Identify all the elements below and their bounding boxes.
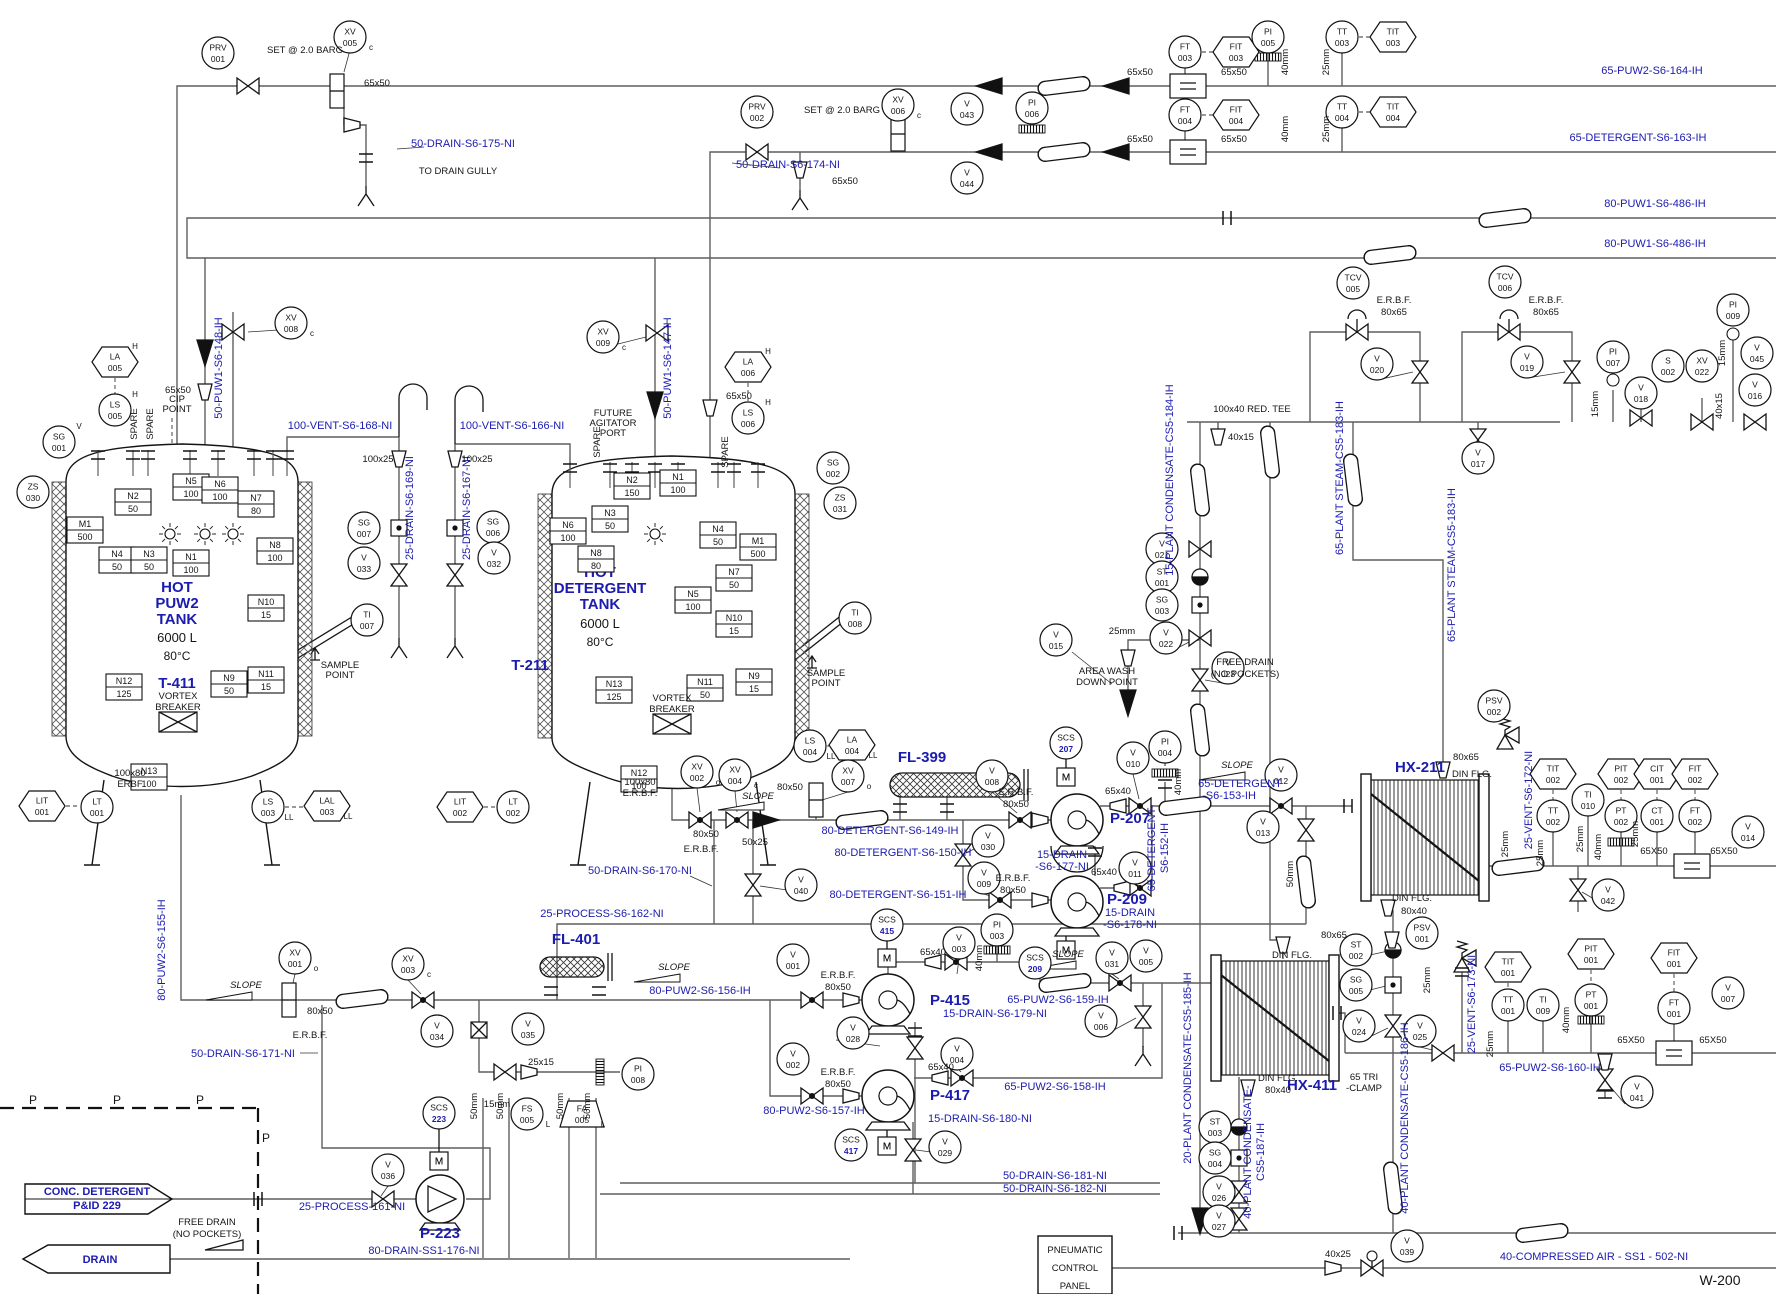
instrument-number: 008 <box>985 777 999 787</box>
nozzle-N4: N450 <box>700 522 736 548</box>
annotation: DIN FLG. <box>1258 1073 1298 1084</box>
reducer-symbol <box>1032 813 1048 827</box>
instrument-TI-008: TI008 <box>839 602 871 634</box>
instrument-function: LAL <box>319 796 334 806</box>
shape <box>1515 1223 1568 1243</box>
instrument-SG-003: SG003 <box>1146 589 1178 621</box>
shape <box>358 186 374 206</box>
instrument-LT-002: LT002 <box>497 791 529 823</box>
nozzle-id: N7 <box>728 567 740 577</box>
shape <box>843 1089 859 1103</box>
instrument-number: 001 <box>1501 1006 1515 1016</box>
instrument-function: ST <box>1351 940 1362 950</box>
flexible-hose-symbol <box>1260 425 1280 478</box>
valve-symbol <box>1135 1006 1151 1028</box>
line-label: 25-VENT-S6-172-NI <box>1523 751 1535 849</box>
instrument-number: 026 <box>1212 1193 1226 1203</box>
flange-pair-symbol <box>592 987 606 995</box>
hose-inner <box>1363 245 1416 265</box>
instrument-function: SCS <box>1057 733 1075 743</box>
annotation: 65x50 <box>1127 134 1153 145</box>
flexible-hose-symbol <box>1190 463 1210 516</box>
instrument-function: SG <box>827 458 839 468</box>
tank-name: PUW2 <box>155 595 198 612</box>
annotation: FREE DRAIN <box>1216 657 1274 668</box>
instrument-number: 018 <box>1634 394 1648 404</box>
annotation: 65X50 <box>1699 1035 1726 1046</box>
instrument-PI-006: PI006 <box>1016 92 1048 124</box>
open-drain-symbol <box>447 638 463 658</box>
instrument-TT-001: TT001 <box>1492 989 1524 1021</box>
annotation: 100x40 RED. TEE <box>1213 404 1290 415</box>
valve-symbol <box>391 564 407 586</box>
instrument-number: 415 <box>880 926 894 936</box>
motor-label: M <box>883 1142 891 1153</box>
nozzle-size: 150 <box>624 488 639 498</box>
instrument-function: PRV <box>748 102 766 112</box>
nozzle-id: N12 <box>116 676 133 686</box>
instrument-number: 209 <box>1028 964 1042 974</box>
instrument-number: 004 <box>1178 116 1192 126</box>
instrument-function: TI <box>363 610 371 620</box>
nozzle-id: N2 <box>127 491 139 501</box>
hose-inner <box>1038 973 1091 993</box>
instrument-PI-009: PI009 <box>1717 294 1749 326</box>
instrument-function: LT <box>508 797 517 807</box>
annotation: E.R.B.F. <box>293 1030 328 1041</box>
instrument-number: 006 <box>741 419 755 429</box>
tank-temperature: 80°C <box>587 635 614 649</box>
flange-pair-symbol <box>544 987 558 995</box>
pipe <box>1310 332 1420 422</box>
nozzle-id: N6 <box>214 479 226 489</box>
instrument-function: V <box>964 99 970 109</box>
shape <box>344 118 360 132</box>
dot <box>1117 980 1123 986</box>
motor-label: M <box>883 954 891 965</box>
line-label: 80-DRAIN-SS1-176-NI <box>368 1245 479 1257</box>
instrument-number: 013 <box>1256 828 1270 838</box>
instrument-function: V <box>1417 1021 1423 1031</box>
diaphragm-valve-symbol <box>412 992 434 1008</box>
instrument-suffix: c <box>369 43 373 52</box>
valve-symbol <box>745 874 761 896</box>
instrument-number: 003 <box>952 944 966 954</box>
nozzle-size: 50 <box>128 504 138 514</box>
instrument-suffix: H <box>132 390 138 399</box>
nozzle-size: 100 <box>560 533 575 543</box>
instrument-function: V <box>1745 822 1751 832</box>
dot <box>1236 1155 1241 1160</box>
nozzle-size: 100 <box>183 489 198 499</box>
shape <box>843 993 859 1007</box>
line-label: 50-DRAIN-S6-170-NI <box>588 865 692 877</box>
annotation: 100x25 <box>362 454 393 465</box>
annotation: POINT <box>162 404 191 415</box>
instrument-number: 039 <box>1400 1247 1414 1257</box>
leader-line <box>690 876 712 886</box>
instrument-V-007: V007 <box>1712 977 1744 1009</box>
instrument-number: 207 <box>1059 744 1073 754</box>
instrument-number: 001 <box>786 961 800 971</box>
annotation: 50mm <box>495 1093 506 1119</box>
nozzle-id: N3 <box>143 549 155 559</box>
instrument-function: V <box>1216 1182 1222 1192</box>
instrument-number: 031 <box>1105 959 1119 969</box>
instrument-TIT-002: TIT002 <box>1530 759 1576 789</box>
nozzle-N8: N880 <box>578 546 614 572</box>
instrument-function: FIT <box>1668 948 1681 958</box>
detail-path <box>205 1240 243 1250</box>
nozzle-id: N1 <box>185 552 197 562</box>
shape <box>866 1026 910 1034</box>
line-label: 100-VENT-S6-168-NI <box>288 420 393 432</box>
instrument-function: XV <box>285 313 297 323</box>
shape <box>206 992 252 1000</box>
instrument-XV-009: XV009c <box>587 321 626 353</box>
shape <box>1497 727 1519 749</box>
spray-ball-symbol <box>222 523 244 545</box>
line-label: 25-PROCESS-S6-162-NI <box>540 908 664 920</box>
instrument-number: 002 <box>1546 817 1560 827</box>
shape <box>866 1122 910 1130</box>
instrument-function: XV <box>729 765 741 775</box>
diaphragm-valve-symbol <box>1270 798 1292 814</box>
instrument-ZS-030: ZS030 <box>17 476 49 508</box>
offpage-label: DRAIN <box>83 1254 118 1266</box>
open-drain-symbol <box>358 186 374 206</box>
flexible-hose-symbol <box>335 989 388 1009</box>
annotation: 40x15 <box>1714 393 1725 419</box>
spray-ball <box>650 529 660 539</box>
nozzle-id: N11 <box>697 677 713 687</box>
nozzle-id: N7 <box>250 493 262 503</box>
instrument-number: 004 <box>845 746 859 756</box>
annotation: SLOPE <box>230 980 262 991</box>
annotation: 40mm <box>1561 1007 1572 1033</box>
shape <box>703 400 717 416</box>
instrument-SG-005: SG005 <box>1340 969 1372 1001</box>
annotation: 25mm <box>1500 831 1511 857</box>
instrument-number: 003 <box>401 965 415 975</box>
tank-temperature: 80°C <box>164 649 191 663</box>
instrument-number: 001 <box>52 443 66 453</box>
instrument-number: 002 <box>1614 775 1628 785</box>
annotation: 25mm <box>1485 1031 1496 1057</box>
instrument-function: TT <box>1548 806 1558 816</box>
shape <box>391 564 407 586</box>
diaphragm-valve-symbol <box>726 812 748 828</box>
instrument-number: 003 <box>1208 1128 1222 1138</box>
instrument-function: V <box>385 1160 391 1170</box>
flexible-hose-symbol <box>1296 855 1316 908</box>
line-label: 25-DRAIN-S6-169-NI <box>404 456 416 560</box>
instrument-function: TI <box>851 608 859 618</box>
annotation: DIN FLG. <box>1392 893 1432 904</box>
instrument-number: 223 <box>432 1114 446 1124</box>
shape <box>1103 78 1129 94</box>
line-label: 65-PUW2-S6-164-IH <box>1601 65 1703 77</box>
instrument-PRV-002: PRV002 <box>741 96 773 128</box>
shape <box>335 989 388 1009</box>
flow-arrow-down <box>1120 690 1136 716</box>
dot <box>396 525 401 530</box>
instrument-number: 043 <box>960 110 974 120</box>
inline-spool-symbol <box>809 783 823 817</box>
instrument-suffix: LL <box>285 813 294 822</box>
instrument-V-039: V039 <box>1391 1230 1423 1262</box>
valve-symbol <box>907 1037 923 1059</box>
instrument-function: V <box>1278 765 1284 775</box>
dot <box>809 1093 815 1099</box>
instrument-function: TT <box>1503 995 1513 1005</box>
shape <box>544 987 558 995</box>
instrument-V-010: V010 <box>1117 742 1149 774</box>
heater-comb <box>1255 53 1281 61</box>
annotation: 40mm <box>1280 49 1291 75</box>
nozzle-id: N10 <box>726 613 743 623</box>
dot <box>1137 803 1143 809</box>
instrument-number: 035 <box>521 1030 535 1040</box>
instrument-number: 007 <box>1606 358 1620 368</box>
shape <box>1211 429 1225 445</box>
panel-label: PANEL <box>1060 1281 1090 1292</box>
annotation: 65x40 <box>1105 786 1131 797</box>
heating-element-symbol <box>1578 1016 1604 1024</box>
annotation: 65X50 <box>1710 846 1737 857</box>
shape <box>197 340 213 366</box>
line-label: 20-PLANT CONDENSATE-CS5-185-IH <box>1182 972 1194 1164</box>
instrument-function: S <box>1665 356 1671 366</box>
instrument-number: 417 <box>844 1146 858 1156</box>
instrument-XV-001: XV001o <box>279 942 319 974</box>
annotation: 65x40 <box>1091 867 1117 878</box>
shape <box>1478 208 1531 228</box>
instrument-function: FT <box>1690 806 1700 816</box>
instrument-number: 027 <box>1212 1222 1226 1232</box>
shape <box>907 1037 923 1059</box>
instrument-XV-022: XV022 <box>1686 350 1718 382</box>
instrument-suffix: o <box>867 782 872 791</box>
instrument-PIT-001: PIT001 <box>1568 939 1614 969</box>
reducer-symbol <box>843 1089 859 1103</box>
hose-inner <box>1037 76 1090 96</box>
line-label: -S6-153-IH <box>1202 790 1256 802</box>
annotation: E.R.B.F. <box>1377 295 1412 306</box>
line-label: 80-DETERGENT-S6-150-IH <box>835 847 972 859</box>
nozzle-M1: M1500 <box>740 534 776 560</box>
instrument-suffix: L <box>546 1120 551 1129</box>
nozzle-N7: N750 <box>716 565 752 591</box>
instrument-suffix: H <box>132 342 138 351</box>
instrument-function: V <box>1132 858 1138 868</box>
slope-wedge-symbol <box>206 992 252 1000</box>
instrument-number: 032 <box>487 559 501 569</box>
heating-element-symbol <box>984 946 1010 954</box>
flexible-hose-symbol <box>1038 973 1091 993</box>
hose-inner <box>1037 142 1090 162</box>
instrument-function: V <box>525 1019 531 1029</box>
annotation: SPARE <box>720 436 731 468</box>
instrument-number: 002 <box>826 469 840 479</box>
nozzle-id: N5 <box>687 589 699 599</box>
pump-casing <box>862 974 914 1026</box>
line-label: 80-PUW2-S6-155-IH <box>156 899 168 1001</box>
nozzle-N8: N8100 <box>257 538 293 564</box>
instrument-PI-005: PI005 <box>1252 21 1284 53</box>
instrument-function: TIT <box>1387 27 1400 37</box>
instrument-V-029: V029 <box>929 1131 961 1163</box>
instrument-V-034: V034 <box>421 1015 453 1047</box>
annotation: 80x50 <box>777 782 803 793</box>
instrument-V-035: V035 <box>512 1013 544 1045</box>
instrument-function: PI <box>993 920 1001 930</box>
instrument-suffix: o <box>314 964 319 973</box>
instrument-number: 001 <box>1501 968 1515 978</box>
instrument-number: 036 <box>381 1171 395 1181</box>
valve-symbol <box>1744 414 1766 430</box>
annotation: 40mm <box>974 945 985 971</box>
reducer-symbol <box>344 118 360 132</box>
instrument-function: PIT <box>1584 944 1597 954</box>
annotation: 80x65 <box>1321 930 1347 941</box>
instrument-number: 009 <box>1726 311 1740 321</box>
instrument-function: TCV <box>1345 273 1362 283</box>
instrument-number: 004 <box>803 747 817 757</box>
instrument-V-042: V042 <box>1592 879 1624 911</box>
dot <box>420 997 426 1003</box>
insulation <box>795 494 809 738</box>
hose-inner <box>1190 703 1210 756</box>
line-label: 80-PUW1-S6-486-IH <box>1604 238 1706 250</box>
instrument-number: 001 <box>211 54 225 64</box>
annotation: POINT <box>325 670 354 681</box>
nozzle-size: 500 <box>750 549 765 559</box>
instrument-FT-003: FT003 <box>1169 36 1201 68</box>
instrument-suffix: c <box>917 111 921 120</box>
annotation: 80x65 <box>1533 307 1559 318</box>
sight-glass-symbol <box>1385 977 1401 993</box>
nozzle-id: N9 <box>223 673 235 683</box>
instrument-function: V <box>1404 1236 1410 1246</box>
annotation: 100x80 <box>114 768 145 779</box>
instrument-number: 002 <box>690 773 704 783</box>
instrument-function: XV <box>597 327 609 337</box>
annotation: 50mm <box>582 1093 593 1119</box>
instrument-function: V <box>1098 1011 1104 1021</box>
instrument-function: V <box>956 933 962 943</box>
pump <box>862 1070 914 1130</box>
shape <box>753 812 779 828</box>
shape <box>1103 144 1129 160</box>
instrument-number: 002 <box>453 808 467 818</box>
annotation: 65x50 <box>364 78 390 89</box>
shape <box>448 451 462 467</box>
shape <box>1037 142 1090 162</box>
instrument-TT-003: TT003 <box>1326 21 1358 53</box>
vortex-breaker-symbol <box>653 714 691 734</box>
heater-comb <box>596 1059 604 1085</box>
instrument-PSV-001: PSV001 <box>1406 917 1438 949</box>
nozzle-id: N8 <box>269 540 281 550</box>
instrument-number: 003 <box>1229 53 1243 63</box>
nozzle-N10: N1015 <box>248 595 284 621</box>
reducer-symbol <box>1121 650 1135 666</box>
instrument-function: PI <box>1028 98 1036 108</box>
instrument-function: V <box>989 766 995 776</box>
annotation: E.R.B.F. <box>623 788 658 799</box>
instrument-SG-001: SG001V <box>43 422 82 458</box>
shape <box>1325 1261 1341 1275</box>
open-drain-symbol <box>391 638 407 658</box>
valve-symbol <box>1432 1045 1454 1061</box>
valve-symbol <box>237 78 259 94</box>
open-drain-symbol <box>1135 1046 1151 1066</box>
instrument-function: V <box>1143 946 1149 956</box>
instrument-function: LA <box>743 357 754 367</box>
nozzle-size: 125 <box>116 689 131 699</box>
instrument-FS-005: FS005L <box>511 1098 551 1130</box>
line-label: 80-DETERGENT-S6-151-IH <box>830 889 967 901</box>
flexible-hose-symbol <box>1478 208 1531 228</box>
reducer-symbol <box>1032 893 1048 907</box>
hose-inner <box>335 989 388 1009</box>
instrument-number: 004 <box>1208 1159 1222 1169</box>
steam-trap-symbol <box>1192 569 1208 585</box>
nozzle-size: 15 <box>261 610 271 620</box>
instrument-number: 022 <box>1695 367 1709 377</box>
tank-tag: T-211 <box>511 657 549 674</box>
annotation: ERBF <box>117 779 143 790</box>
dot <box>997 897 1003 903</box>
line-label: CS5-187-IH <box>1255 1123 1267 1181</box>
annotation: 25mm <box>1321 49 1332 75</box>
instrument-LIT-001: LIT001 <box>19 791 65 821</box>
nozzle-id: N11 <box>258 669 274 679</box>
instrument-function: V <box>1356 1016 1362 1026</box>
shape <box>718 802 764 810</box>
flexible-hose-symbol <box>1037 142 1090 162</box>
instrument-XV-007: XV007o <box>832 760 872 792</box>
instrument-number: 006 <box>1094 1022 1108 1032</box>
instrument-suffix: H <box>765 347 771 356</box>
instrument-function: SCS <box>842 1135 860 1145</box>
instrument-function: CIT <box>1650 764 1664 774</box>
offpage-label: P&ID 229 <box>73 1200 121 1212</box>
instrument-function: LS <box>110 400 121 410</box>
instrument-V-018: V018 <box>1625 377 1657 409</box>
shape <box>1135 1006 1151 1028</box>
annotation: 25mm <box>1422 967 1433 993</box>
line-label: 50-DRAIN-S6-175-NI <box>411 138 515 150</box>
instrument-function: TI <box>1539 995 1547 1005</box>
flexible-hose-symbol <box>1515 1223 1568 1243</box>
flexible-hose-symbol <box>1363 245 1416 265</box>
leader-line <box>248 330 278 332</box>
line-label: 65-PUW2-S6-159-IH <box>1007 994 1109 1006</box>
instrument-TI-007: TI007 <box>351 604 383 636</box>
instrument-suffix: L <box>601 1120 606 1129</box>
heater-comb <box>1019 125 1045 133</box>
dot <box>809 997 815 1003</box>
shape <box>1038 973 1091 993</box>
flow-arrow-down <box>647 392 663 418</box>
inline-spool-symbol <box>891 117 905 151</box>
annotation: 80x50 <box>693 829 719 840</box>
inline-spool-symbol <box>282 983 296 1017</box>
dot <box>1017 817 1023 823</box>
hose-inner <box>1478 208 1531 228</box>
